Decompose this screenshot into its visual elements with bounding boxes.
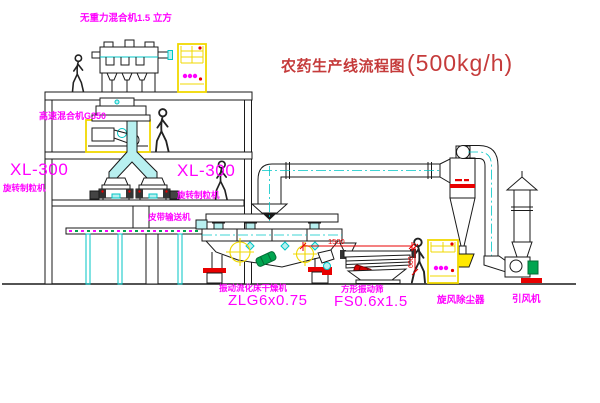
title-text: 农药生产线流程图 <box>281 55 405 76</box>
label-dryer-model: ZLG6x0.75 <box>228 293 308 308</box>
label-high-speed-mixer: 高速混合机G350 <box>39 112 106 121</box>
label-gravity-mixer: 无重力混合机1.5 立方 <box>80 14 172 24</box>
title-capacity: (500kg/h) <box>407 50 513 77</box>
label-granulator-right-model: XL-300 <box>177 162 235 179</box>
diagram-title: 农药生产线流程图 (500kg/h) <box>281 50 513 77</box>
label-granulator-left-model: XL-300 <box>10 161 68 178</box>
exhaust-duct <box>252 158 452 221</box>
dimension-1500: 1500 <box>328 238 345 246</box>
label-sieve-model: FS0.6x1.5 <box>334 294 408 309</box>
control-cabinet-top <box>178 44 206 92</box>
dimension-600: 600 <box>408 256 415 268</box>
granulator-left <box>90 178 133 200</box>
label-granulator-right-name: 旋转制粒机 <box>177 191 220 200</box>
fluid-bed-dryer <box>196 214 342 283</box>
high-speed-mixer <box>86 98 150 152</box>
label-belt-conveyor: 皮带输送机 <box>148 213 191 222</box>
vibrating-sieve <box>340 243 416 284</box>
process-flow-diagram: 农药生产线流程图 (500kg/h) 无重力混合机1.5 立方 高速混合机G35… <box>0 0 600 403</box>
control-cabinet-ground <box>428 240 458 283</box>
label-cyclone: 旋风除尘器 <box>437 296 485 306</box>
label-granulator-left-name: 旋转制粒机 <box>3 184 46 193</box>
granulator-right <box>136 178 179 200</box>
induced-draft-fan <box>484 242 542 283</box>
gravity-free-mixer <box>92 40 173 92</box>
label-fan: 引风机 <box>512 295 541 305</box>
